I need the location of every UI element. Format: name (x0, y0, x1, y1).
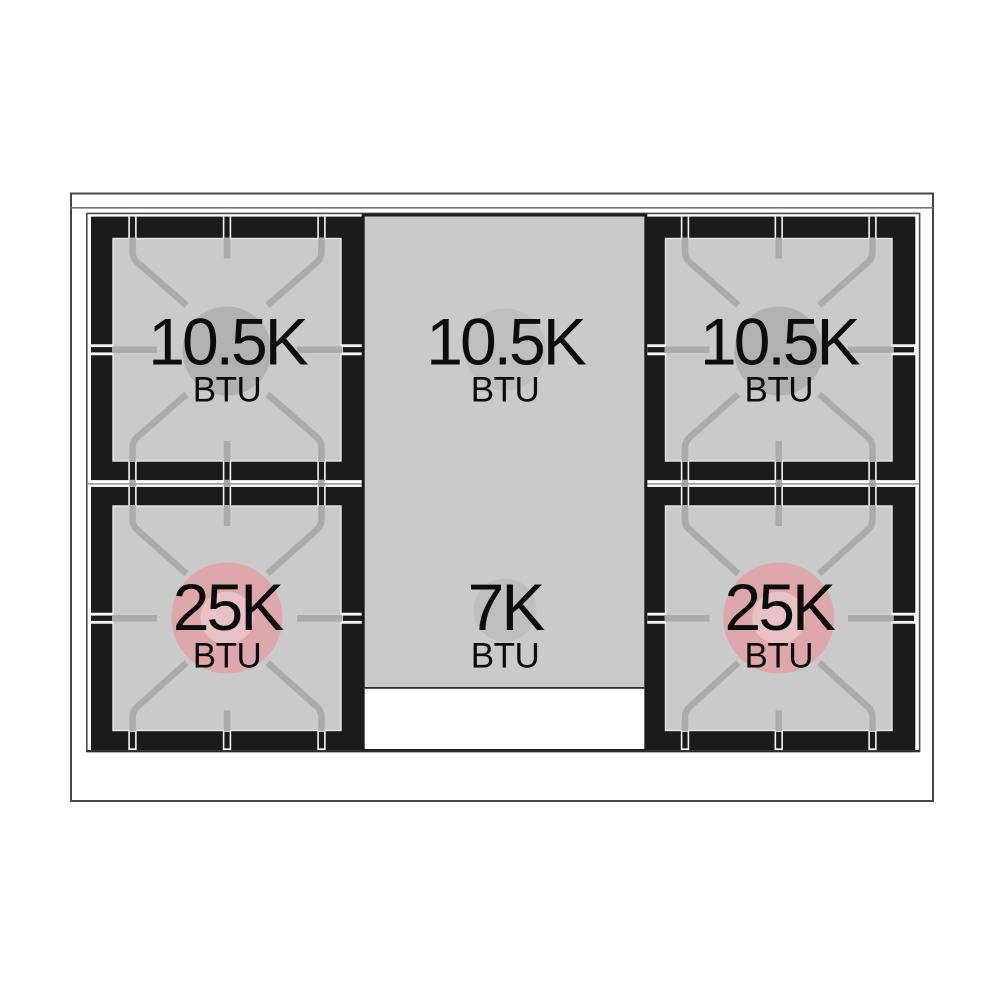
svg-text:7K: 7K (468, 570, 546, 644)
svg-text:25K: 25K (725, 570, 836, 644)
svg-text:10.5K: 10.5K (700, 305, 860, 379)
svg-text:BTU: BTU (745, 371, 814, 410)
svg-text:25K: 25K (173, 570, 284, 644)
svg-text:BTU: BTU (193, 371, 262, 410)
svg-text:BTU: BTU (193, 637, 262, 676)
svg-text:BTU: BTU (745, 637, 814, 676)
svg-text:BTU: BTU (471, 371, 540, 410)
svg-text:10.5K: 10.5K (148, 305, 308, 379)
svg-text:BTU: BTU (471, 637, 540, 676)
svg-text:10.5K: 10.5K (426, 305, 586, 379)
